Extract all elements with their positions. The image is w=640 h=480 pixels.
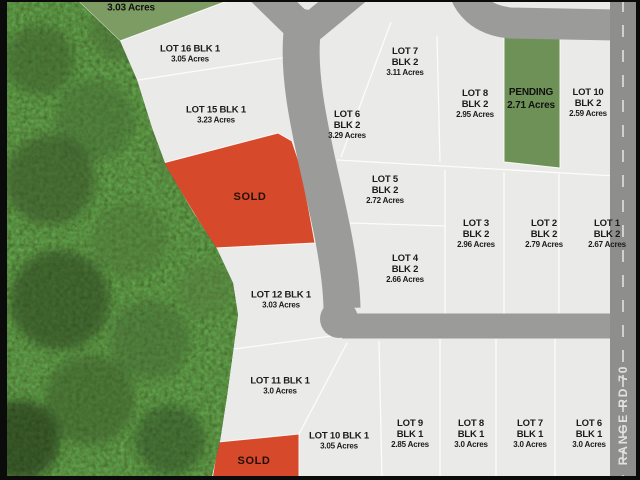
lot-title: LOT 1 [588, 218, 626, 229]
sold-upper-label: SOLD [234, 191, 267, 203]
lot-10-blk-2-label: LOT 10 BLK 2 2.59 Acres [569, 87, 607, 119]
sold-lower-label: SOLD [238, 455, 271, 467]
lot-11-blk-1-label: LOT 11 BLK 1 3.0 Acres [250, 376, 309, 397]
lot-acres: 3.03 Acres [251, 301, 311, 311]
lot-status-text: SOLD [234, 191, 267, 203]
lot-title: LOT 16 BLK 1 [160, 44, 220, 55]
lot-8-blk-2-label: LOT 8 BLK 2 2.95 Acres [456, 88, 494, 120]
lot-subtitle: BLK 2 [386, 264, 424, 275]
lot-subtitle: BLK 2 [588, 229, 626, 240]
lot-acres: 3.0 Acres [513, 440, 547, 450]
lot-acres: 2.71 Acres [507, 101, 555, 111]
lot-acres: 2.72 Acres [366, 196, 404, 206]
lot-acres: 2.66 Acres [386, 275, 424, 285]
lot-subtitle: BLK 1 [454, 429, 488, 440]
lot-acres: 2.67 Acres [588, 240, 626, 250]
lot-acres: 2.85 Acres [391, 440, 429, 450]
lot-acres: 3.05 Acres [309, 442, 369, 452]
lot-title: LOT 3 [457, 218, 495, 229]
lot-subtitle: BLK 2 [386, 57, 423, 68]
lot-title: LOT 7 [386, 46, 423, 57]
lot-8-blk-1-label: LOT 8 BLK 1 3.0 Acres [454, 418, 488, 450]
lot-title: LOT 15 BLK 1 [186, 105, 246, 116]
lot-subtitle: BLK 1 [513, 429, 547, 440]
lot-16-blk-1-label: LOT 16 BLK 1 3.05 Acres [160, 44, 220, 65]
lot-subtitle: BLK 1 [391, 429, 429, 440]
lot-status-text: PENDING [507, 87, 555, 98]
lot-3-blk-2-label: LOT 3 BLK 2 2.96 Acres [457, 218, 495, 250]
lot-subtitle: BLK 2 [456, 99, 494, 110]
lot-pending-top-label: 3.03 Acres [107, 1, 155, 14]
lot-subtitle: BLK 2 [457, 229, 495, 240]
lot-acres: 2.59 Acres [569, 109, 607, 119]
lot-acres: 3.0 Acres [572, 440, 606, 450]
lot-acres: 2.79 Acres [525, 240, 563, 250]
lot-6-blk-1-label: LOT 6 BLK 1 3.0 Acres [572, 418, 606, 450]
lot-acres: 3.11 Acres [386, 68, 423, 78]
lot-7-blk-1-label: LOT 7 BLK 1 3.0 Acres [513, 418, 547, 450]
lot-1-blk-2-label: LOT 1 BLK 2 2.67 Acres [588, 218, 626, 250]
lot-acres: 3.23 Acres [186, 116, 246, 126]
lot-title: LOT 2 [525, 218, 563, 229]
lot-12-blk-1-label: LOT 12 BLK 1 3.03 Acres [251, 290, 311, 311]
lot-title: LOT 4 [386, 253, 424, 264]
lot-subtitle: BLK 1 [572, 429, 606, 440]
lot-subtitle: BLK 2 [366, 185, 404, 196]
lot-acres: 3.29 Acres [328, 131, 366, 141]
range-rd-70-label: RANGE RD 70 [616, 365, 630, 465]
lot-status-text: SOLD [238, 455, 271, 467]
lot-5-blk-2-label: LOT 5 BLK 2 2.72 Acres [366, 174, 404, 206]
lot-acres: 2.96 Acres [457, 240, 495, 250]
lot-acres: 3.0 Acres [454, 440, 488, 450]
lot-9-blk-1-label: LOT 9 BLK 1 2.85 Acres [391, 418, 429, 450]
lot-title: LOT 9 [391, 418, 429, 429]
lot-6-blk-2-label: LOT 6 BLK 2 3.29 Acres [328, 109, 366, 141]
lot-7-blk-2-label: LOT 7 BLK 2 3.11 Acres [386, 46, 423, 78]
lot-4-blk-2-label: LOT 4 BLK 2 2.66 Acres [386, 253, 424, 285]
lot-title: LOT 6 [328, 109, 366, 120]
lot-title: LOT 10 [569, 87, 607, 98]
lot-subtitle: BLK 2 [525, 229, 563, 240]
lot-title: LOT 8 [454, 418, 488, 429]
lot-acres: 3.05 Acres [160, 55, 220, 65]
lot-15-blk-1-label: LOT 15 BLK 1 3.23 Acres [186, 105, 246, 126]
lot-10-blk-1-label: LOT 10 BLK 1 3.05 Acres [309, 431, 369, 452]
plat-map: 3.03 Acres LOT 16 BLK 1 3.05 Acres LOT 1… [0, 0, 640, 480]
lot-acres: 2.95 Acres [456, 110, 494, 120]
lot-title: LOT 11 BLK 1 [250, 376, 309, 387]
lot-labels-layer: 3.03 Acres LOT 16 BLK 1 3.05 Acres LOT 1… [0, 0, 640, 480]
lot-subtitle: BLK 2 [569, 98, 607, 109]
lot-title: LOT 10 BLK 1 [309, 431, 369, 442]
lot-2-blk-2-label: LOT 2 BLK 2 2.79 Acres [525, 218, 563, 250]
pending-lot-label: PENDING 2.71 Acres [507, 87, 555, 111]
lot-title: LOT 12 BLK 1 [251, 290, 311, 301]
lot-title: LOT 8 [456, 88, 494, 99]
lot-subtitle: BLK 2 [328, 120, 366, 131]
lot-title: LOT 7 [513, 418, 547, 429]
lot-title: LOT 5 [366, 174, 404, 185]
lot-acres: 3.0 Acres [250, 387, 309, 397]
lot-acres: 3.03 Acres [107, 4, 155, 14]
lot-title: LOT 6 [572, 418, 606, 429]
